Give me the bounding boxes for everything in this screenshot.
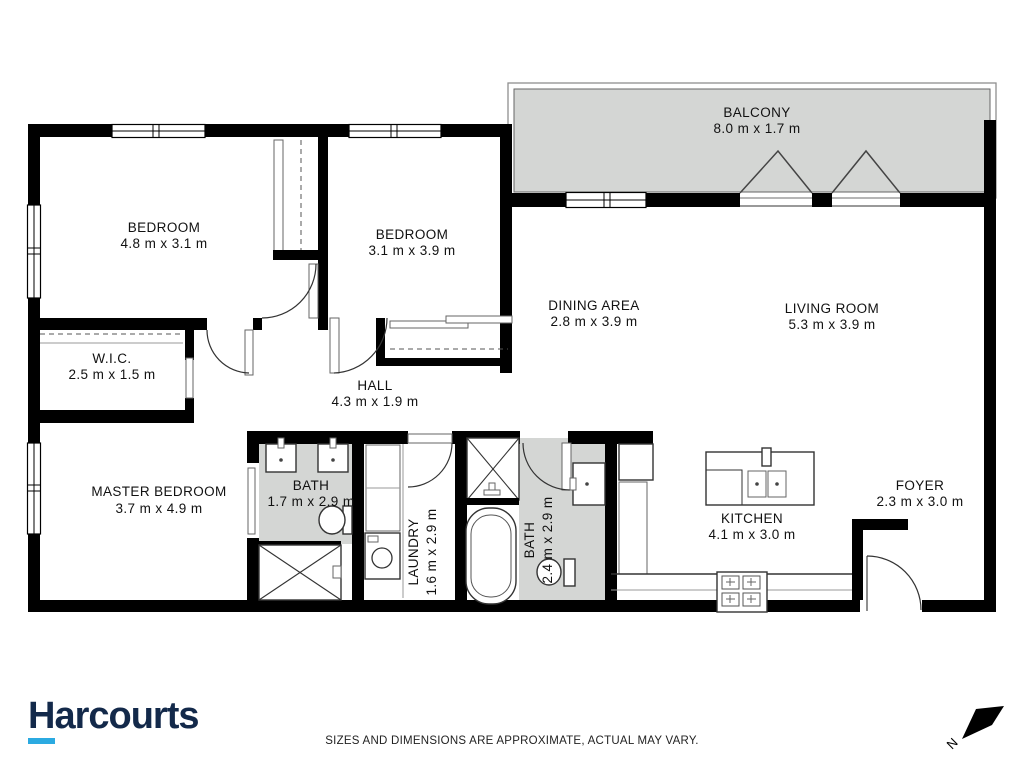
room-label-laundry: LAUNDRY (406, 518, 421, 585)
room-label-bedroom1: BEDROOM (128, 220, 201, 235)
room-dims-hall: 4.3 m x 1.9 m (332, 394, 419, 409)
wic-closet-lines (40, 334, 183, 343)
drain-icon (279, 458, 283, 462)
faucet-icon (570, 478, 576, 490)
wall (318, 137, 328, 318)
window-symbol (28, 205, 41, 298)
wall (605, 431, 617, 612)
wall (273, 250, 328, 260)
sliding-door-icon (274, 140, 283, 252)
wall (376, 358, 512, 366)
window-symbol (566, 193, 646, 208)
wall (253, 318, 262, 330)
wall (852, 519, 863, 600)
room-label-foyer: FOYER (896, 478, 945, 493)
window-symbol (28, 443, 41, 534)
wall (455, 431, 467, 612)
room-dims-wic: 2.5 m x 1.5 m (69, 367, 156, 382)
wall (28, 124, 40, 612)
door-arc (207, 330, 249, 373)
harcourts-wordmark: Harcourts (28, 697, 199, 735)
room-dims-master: 3.7 m x 4.9 m (116, 501, 203, 516)
drain-icon (331, 458, 335, 462)
room-dims-bathroom: 2.4 m x 2.9 m (540, 497, 555, 584)
balcony-area (508, 83, 996, 208)
shower-tap-icon (333, 566, 341, 578)
floorplan-drawing: BALCONY 8.0 m x 1.7 m BEDROOM 4.8 m x 3.… (0, 0, 1024, 768)
wall (185, 330, 194, 360)
faucet-icon (762, 448, 771, 466)
room-label-hall: HALL (357, 378, 392, 393)
logo-underline (28, 738, 55, 744)
room-label-dining: DINING AREA (548, 298, 639, 313)
wall (185, 398, 194, 412)
bathtub-icon (466, 508, 516, 604)
room-dims-living: 5.3 m x 3.9 m (789, 317, 876, 332)
north-arrow: N (944, 706, 1004, 752)
room-label-ensuite: BATH (293, 478, 330, 493)
wall (28, 410, 194, 423)
room-dims-bedroom1: 4.8 m x 3.1 m (121, 236, 208, 251)
north-label: N (944, 735, 961, 752)
window-symbol (112, 125, 205, 138)
wall (984, 120, 996, 612)
door-leaf (330, 318, 339, 373)
door-leaf (408, 434, 452, 443)
room-dims-balcony: 8.0 m x 1.7 m (714, 121, 801, 136)
door-leaf (248, 468, 255, 534)
toilet-icon (319, 506, 345, 534)
entry-opening (860, 600, 922, 612)
fridge-icon (619, 444, 653, 480)
sink-icon (573, 463, 605, 505)
sliding-door-icon (446, 316, 512, 323)
room-label-bathroom: BATH (522, 522, 537, 559)
drain-icon (755, 482, 759, 486)
bedroom2-closet (390, 316, 512, 349)
room-dims-kitchen: 4.1 m x 3.0 m (709, 527, 796, 542)
drain-icon (585, 482, 589, 486)
wall (900, 193, 985, 207)
disclaimer-text: SIZES AND DIMENSIONS ARE APPROXIMATE, AC… (325, 735, 699, 747)
harcourts-logo: Harcourts (28, 697, 199, 744)
door-leaf (186, 358, 193, 398)
shower-tap-icon (489, 483, 495, 490)
wall (455, 498, 519, 505)
door-arc (262, 264, 316, 318)
window-symbol (349, 125, 441, 138)
wall (512, 193, 566, 207)
door-leaf (309, 264, 318, 318)
room-dims-ensuite: 1.7 m x 2.9 m (268, 494, 355, 509)
floorplan-page: BALCONY 8.0 m x 1.7 m BEDROOM 4.8 m x 3.… (0, 0, 1024, 768)
wall (28, 600, 996, 612)
room-dims-dining: 2.8 m x 3.9 m (551, 314, 638, 329)
wall (812, 193, 832, 207)
room-label-kitchen: KITCHEN (721, 511, 783, 526)
room-dims-bedroom2: 3.1 m x 3.9 m (369, 243, 456, 258)
room-dims-laundry: 1.6 m x 2.9 m (424, 509, 439, 596)
wall (247, 538, 259, 612)
room-label-living: LIVING ROOM (785, 301, 879, 316)
room-label-master: MASTER BEDROOM (91, 484, 226, 499)
faucet-icon (278, 438, 284, 448)
toilet-tank (564, 559, 575, 586)
wall (500, 124, 512, 373)
room-dims-foyer: 2.3 m x 3.0 m (877, 494, 964, 509)
room-label-balcony: BALCONY (723, 105, 790, 120)
wall (645, 193, 740, 207)
shower-tap-icon (484, 490, 500, 495)
room-label-wic: W.I.C. (92, 351, 131, 366)
room-label-bedroom2: BEDROOM (376, 227, 449, 242)
door-arc (408, 443, 452, 487)
wall (28, 318, 207, 330)
washer-panel (368, 536, 378, 542)
faucet-icon (330, 438, 336, 448)
north-arrow-icon (962, 706, 1004, 739)
door-leaf (245, 330, 253, 375)
counter (619, 482, 647, 574)
wall (247, 431, 259, 463)
drain-icon (775, 482, 779, 486)
wall (318, 318, 328, 330)
laundry-fixtures (365, 444, 403, 598)
wall (352, 431, 364, 612)
